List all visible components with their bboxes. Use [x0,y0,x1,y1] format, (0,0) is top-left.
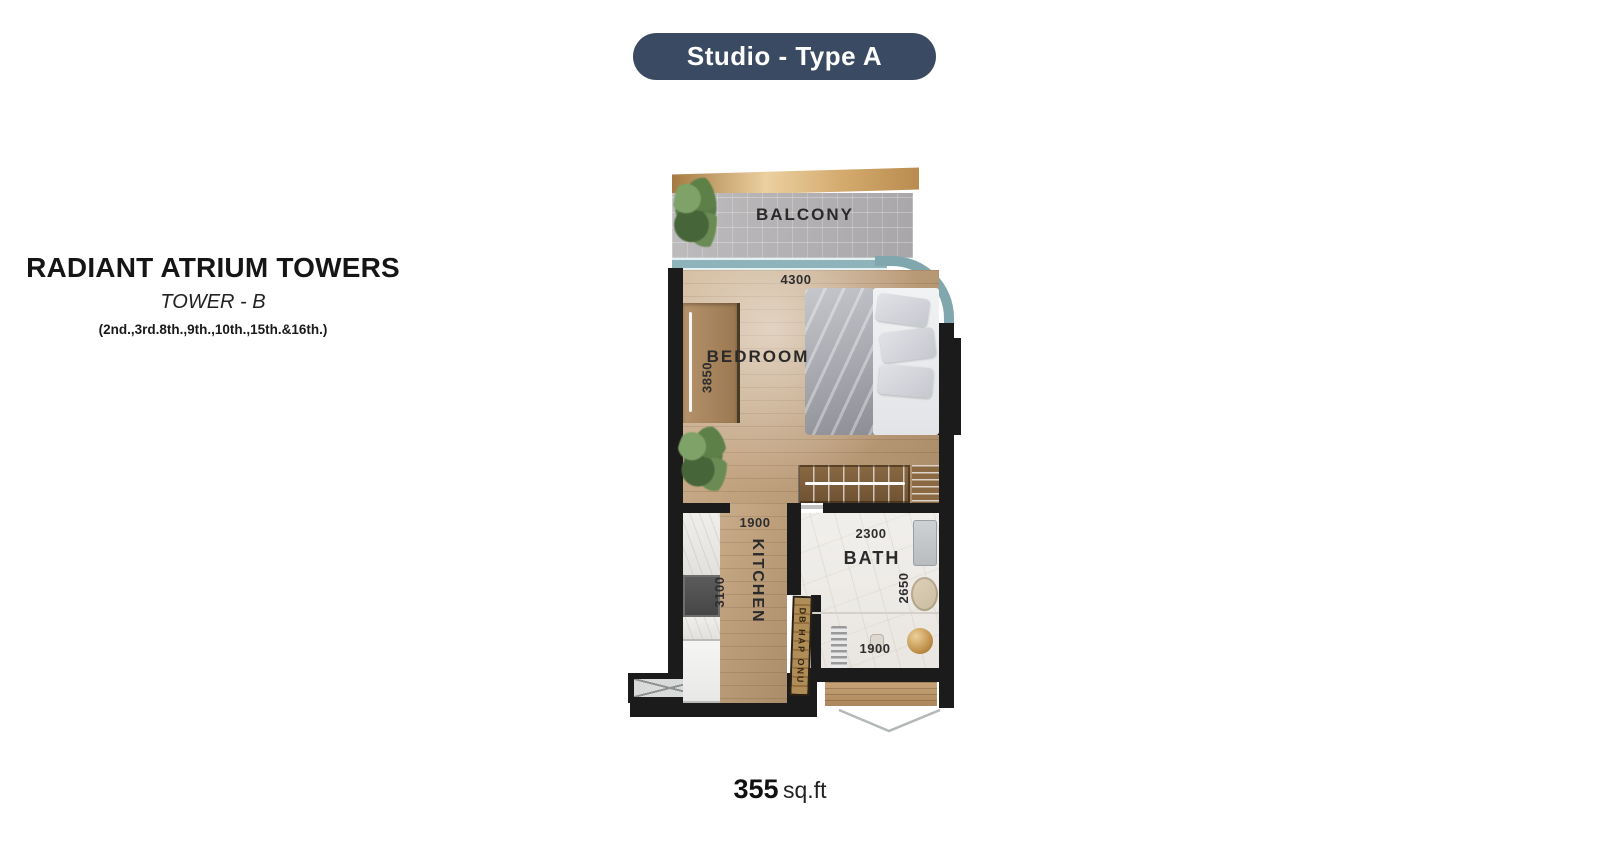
wardrobe-handle [689,312,692,412]
area-value: 355 [734,774,779,804]
area-unit: sq.ft [783,777,826,803]
area-label: 355 sq.ft [615,774,945,805]
bed-pillow [878,364,934,399]
bath-top-wall [823,503,954,513]
balcony-plant [673,174,717,256]
bedroom-kitchen-wall [668,503,730,513]
entry-door: DB HAP ONU [789,596,812,697]
tower-name: TOWER - B [18,291,408,314]
dresser-side-unit [912,465,939,503]
unit-type-badge: Studio - Type A [633,33,936,80]
bath-top-jamb [787,503,801,513]
dim-bath-width: 2300 [811,526,931,541]
entrance-mat [825,682,937,706]
kitchen-label: KITCHEN [748,521,766,641]
entrance-chevron [837,708,942,734]
dresser-handle [805,482,905,485]
dim-bath-inner-width: 1900 [815,641,935,656]
toilet [911,577,938,611]
bath-lower-jamb [811,595,821,673]
entry-door-text: DB HAP ONU [795,607,808,684]
project-info: RADIANT ATRIUM TOWERS TOWER - B (2nd.,3r… [18,252,408,337]
floors-note: (2nd.,3rd.8th.,9th.,10th.,15th.&16th.) [18,322,408,337]
balcony-label: BALCONY [735,205,875,225]
bath-label: BATH [812,548,932,569]
dim-bedroom-depth: 3850 [700,318,717,438]
floor-plan: BALCONY DB HAP ONU [615,160,965,745]
dim-bath-depth: 2650 [896,528,912,648]
bath-door-lintel [801,505,823,509]
kitchen-bottom-wall [630,703,787,717]
bath-bottom-wall [801,668,954,682]
glass-railing [672,258,887,270]
dim-kitchen-depth: 3100 [712,532,728,652]
project-name: RADIANT ATRIUM TOWERS [18,252,408,284]
bathtub-edge [801,612,939,614]
dim-bedroom-width: 4300 [736,272,856,287]
